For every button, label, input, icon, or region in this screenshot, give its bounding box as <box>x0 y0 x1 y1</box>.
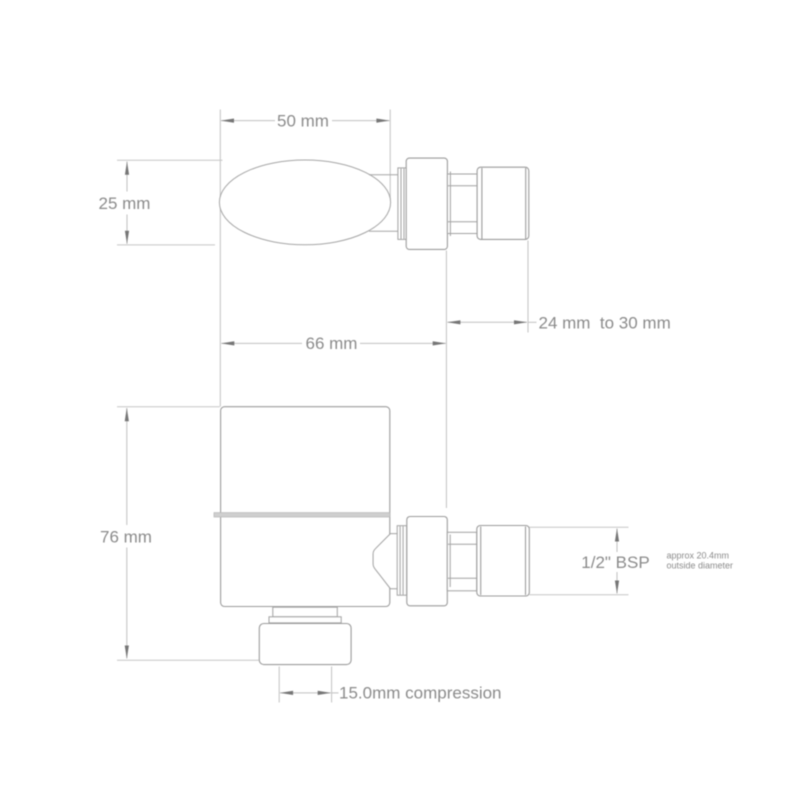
svg-text:1/2" BSP: 1/2" BSP <box>581 553 649 572</box>
svg-text:25 mm: 25 mm <box>99 194 151 213</box>
svg-text:24 mm to 30 mm: 24 mm to 30 mm <box>539 313 671 332</box>
svg-text:66 mm: 66 mm <box>306 334 358 353</box>
svg-text:76 mm: 76 mm <box>100 527 152 546</box>
svg-text:50 mm: 50 mm <box>277 112 329 131</box>
svg-text:approx 20.4mm: approx 20.4mm <box>667 551 730 561</box>
svg-text:15.0mm compression: 15.0mm compression <box>339 683 502 702</box>
svg-text:outside diameter: outside diameter <box>667 561 734 571</box>
